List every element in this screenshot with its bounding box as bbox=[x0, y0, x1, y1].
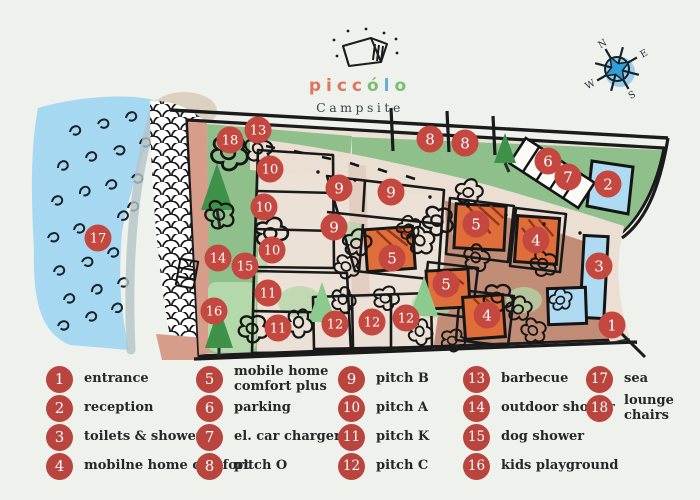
brand-letter: c bbox=[352, 78, 367, 95]
map-marker-9: 9 bbox=[326, 175, 353, 202]
map-marker-10: 10 bbox=[251, 194, 278, 221]
compass-letter-N: N bbox=[596, 37, 609, 51]
svg-text:10: 10 bbox=[264, 244, 281, 259]
svg-text:9: 9 bbox=[329, 218, 339, 236]
map-marker-15: 15 bbox=[232, 253, 259, 280]
svg-text:5: 5 bbox=[441, 275, 451, 293]
brand-letter: o bbox=[394, 78, 411, 95]
compass-rose: NESW bbox=[569, 22, 665, 118]
svg-text:11: 11 bbox=[270, 322, 287, 337]
tent-doodle bbox=[310, 26, 410, 74]
svg-text:7: 7 bbox=[563, 168, 573, 186]
brand-letter: p bbox=[309, 78, 326, 95]
map-marker-5: 5 bbox=[433, 271, 460, 298]
svg-text:5: 5 bbox=[471, 215, 481, 233]
map-marker-11: 11 bbox=[265, 315, 292, 342]
map-marker-12: 12 bbox=[359, 309, 386, 336]
svg-text:8: 8 bbox=[460, 134, 470, 152]
svg-text:8: 8 bbox=[425, 130, 435, 148]
map-marker-4: 4 bbox=[474, 302, 501, 329]
svg-text:9: 9 bbox=[334, 179, 344, 197]
map-marker-7: 7 bbox=[555, 164, 582, 191]
map-marker-5: 5 bbox=[379, 245, 406, 272]
svg-text:6: 6 bbox=[543, 152, 553, 170]
map-marker-16: 16 bbox=[201, 298, 228, 325]
map-marker-18: 18 bbox=[217, 127, 244, 154]
map-marker-8: 8 bbox=[452, 130, 479, 157]
map-marker-13: 13 bbox=[245, 117, 272, 144]
map-marker-10: 10 bbox=[257, 156, 284, 183]
svg-text:16: 16 bbox=[206, 305, 223, 320]
map-marker-2: 2 bbox=[595, 171, 622, 198]
campsite-map-page: 1234455567889991010101111121212131415161… bbox=[0, 0, 700, 500]
svg-text:2: 2 bbox=[603, 175, 613, 193]
map-marker-12: 12 bbox=[393, 305, 420, 332]
brand-subtitle: Campsite bbox=[250, 100, 470, 115]
svg-text:4: 4 bbox=[482, 306, 492, 324]
map-marker-3: 3 bbox=[586, 253, 613, 280]
map-marker-8: 8 bbox=[417, 126, 444, 153]
map-marker-14: 14 bbox=[205, 245, 232, 272]
svg-text:14: 14 bbox=[210, 252, 227, 267]
map-marker-12: 12 bbox=[322, 311, 349, 338]
svg-text:1: 1 bbox=[607, 316, 617, 334]
svg-text:3: 3 bbox=[594, 257, 604, 275]
svg-text:4: 4 bbox=[531, 231, 541, 249]
compass-letter-W: W bbox=[583, 78, 597, 93]
map-marker-9: 9 bbox=[378, 179, 405, 206]
svg-text:13: 13 bbox=[250, 124, 267, 139]
brand-letter: c bbox=[337, 78, 352, 95]
svg-text:10: 10 bbox=[262, 163, 279, 178]
svg-text:11: 11 bbox=[260, 287, 277, 302]
svg-text:12: 12 bbox=[364, 316, 381, 331]
brand-letter: i bbox=[326, 78, 337, 95]
svg-text:9: 9 bbox=[386, 183, 396, 201]
map-marker-9: 9 bbox=[321, 214, 348, 241]
map-marker-11: 11 bbox=[255, 280, 282, 307]
svg-text:15: 15 bbox=[237, 260, 254, 275]
svg-text:17: 17 bbox=[90, 232, 107, 247]
compass-letter-S: S bbox=[627, 89, 638, 102]
map-marker-4: 4 bbox=[523, 227, 550, 254]
map-marker-17: 17 bbox=[85, 225, 112, 252]
brand-name: piccólo bbox=[250, 78, 470, 95]
svg-text:18: 18 bbox=[222, 134, 239, 149]
svg-text:5: 5 bbox=[387, 249, 397, 267]
svg-text:12: 12 bbox=[398, 312, 415, 327]
brand-letter: ó bbox=[367, 78, 384, 95]
svg-text:10: 10 bbox=[256, 201, 273, 216]
svg-text:12: 12 bbox=[327, 318, 344, 333]
compass-letter-E: E bbox=[638, 47, 650, 60]
map-marker-5: 5 bbox=[463, 211, 490, 238]
logo: piccólo Campsite bbox=[250, 26, 470, 115]
brand-letter: l bbox=[384, 78, 395, 95]
map-marker-1: 1 bbox=[599, 312, 626, 339]
map-marker-10: 10 bbox=[259, 237, 286, 264]
